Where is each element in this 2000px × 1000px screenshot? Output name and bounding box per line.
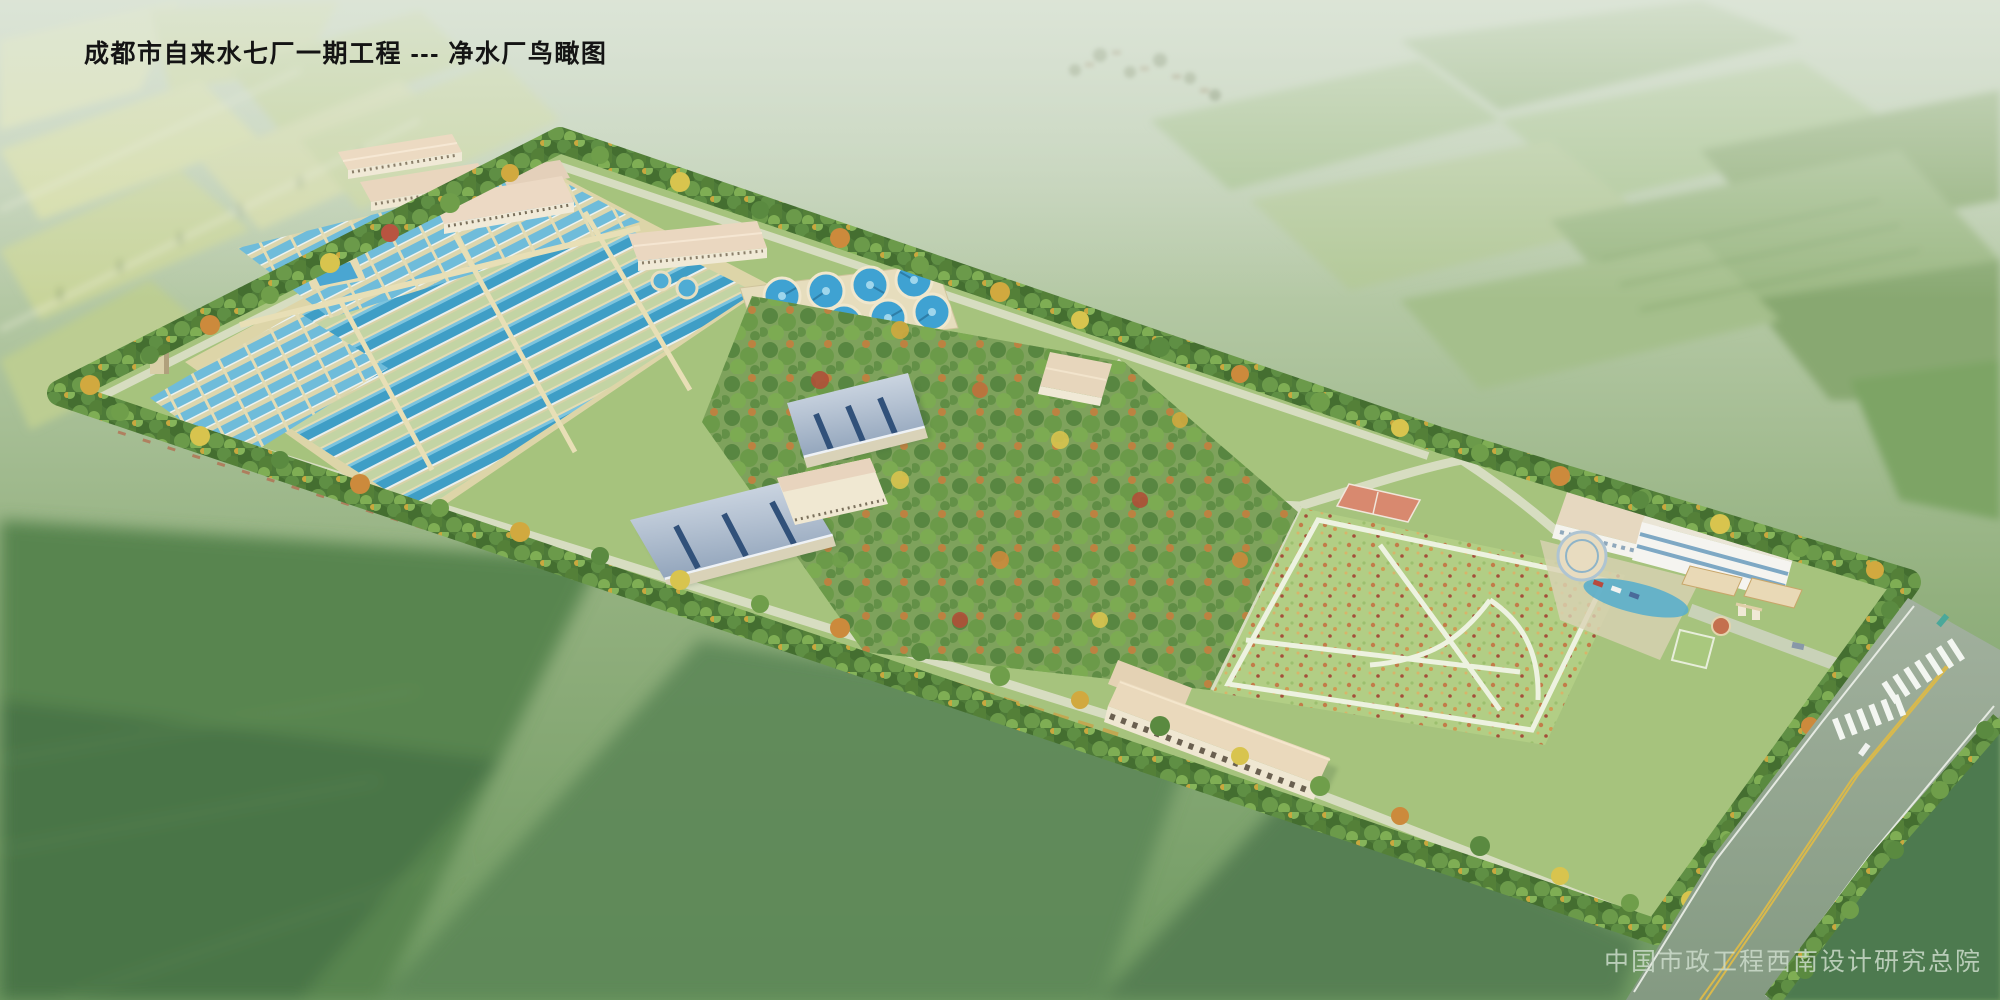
page-title: 成都市自来水七厂一期工程 --- 净水厂鸟瞰图 — [84, 34, 607, 70]
credit-text: 中国市政工程西南设计研究总院 — [1604, 942, 1982, 978]
entrance-garden — [1672, 630, 1714, 668]
flower-bed — [1712, 617, 1730, 635]
scene-svg — [0, 0, 2000, 1000]
rendering-canvas: 成都市自来水七厂一期工程 --- 净水厂鸟瞰图 中国市政工程西南设计研究总院 — [0, 0, 2000, 1000]
